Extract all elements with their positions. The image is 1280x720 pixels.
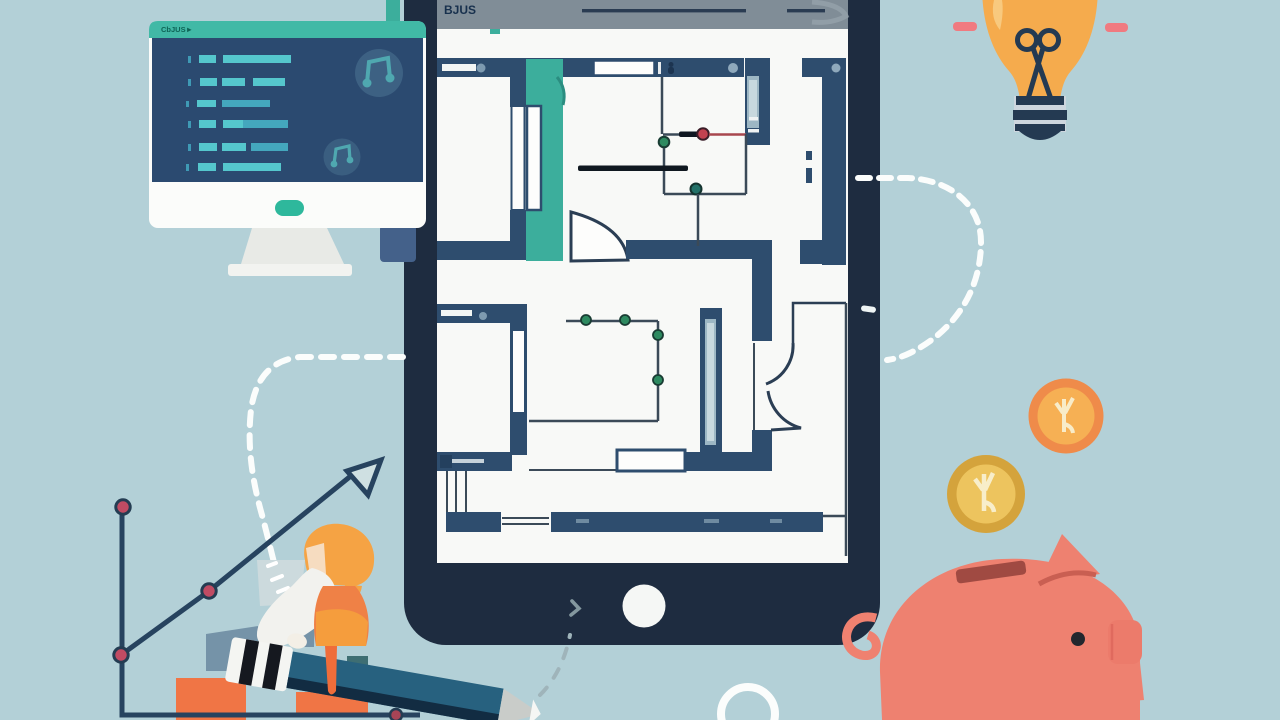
svg-text:BJUS: BJUS — [444, 3, 476, 17]
svg-text:CbJUS►: CbJUS► — [161, 25, 193, 34]
